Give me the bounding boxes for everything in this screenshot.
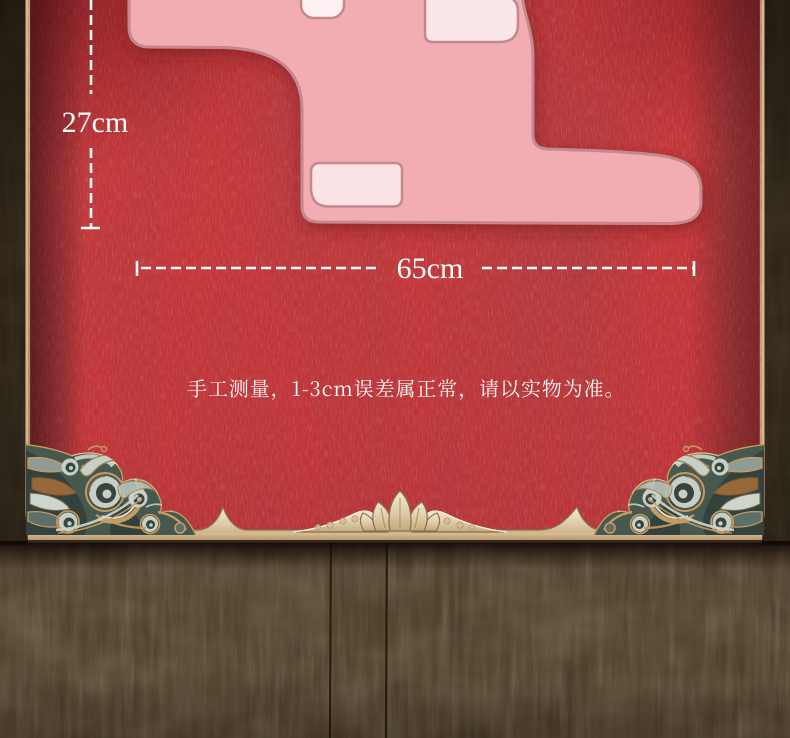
svg-text:65cm: 65cm [397, 252, 464, 285]
svg-text:27cm: 27cm [62, 106, 129, 139]
